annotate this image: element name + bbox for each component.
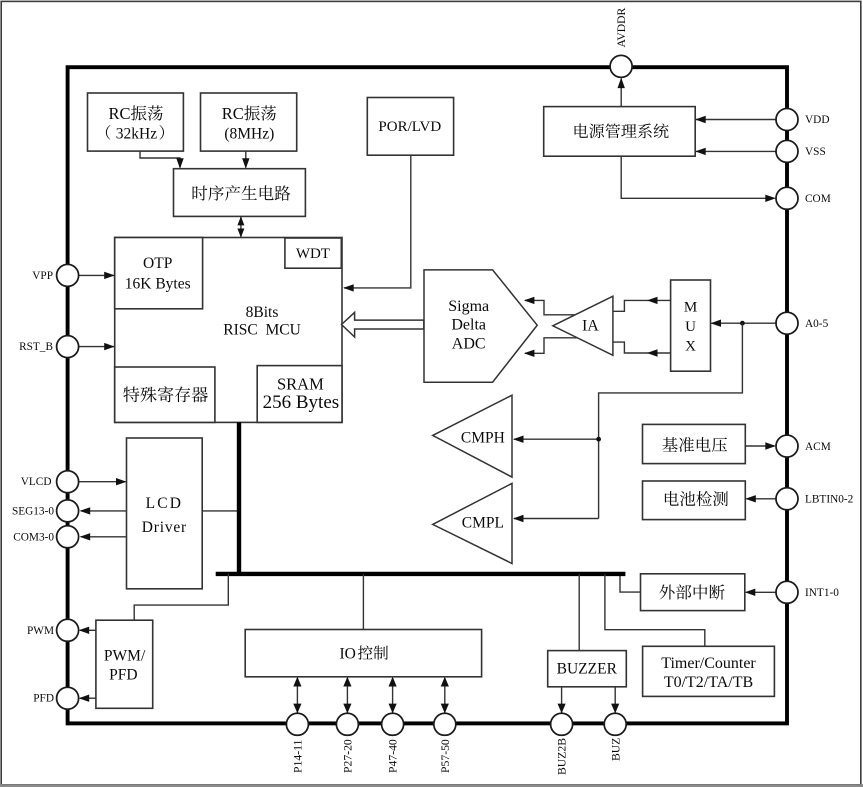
svg-text:VSS: VSS xyxy=(805,146,826,158)
svg-text:CMPL: CMPL xyxy=(462,514,504,531)
svg-text:COM3-0: COM3-0 xyxy=(13,531,54,543)
svg-text:VDD: VDD xyxy=(805,114,829,126)
svg-text:IA: IA xyxy=(582,318,599,335)
svg-text:(8MHz): (8MHz) xyxy=(224,125,274,142)
svg-text:PWM: PWM xyxy=(27,625,54,637)
svg-text:PFD: PFD xyxy=(33,693,54,705)
svg-text:P14-11: P14-11 xyxy=(292,740,305,773)
svg-text:P57-50: P57-50 xyxy=(439,739,452,773)
svg-text:IO: IO xyxy=(340,646,356,663)
svg-text:BUZZER: BUZZER xyxy=(557,661,618,678)
svg-text:16K Bytes: 16K Bytes xyxy=(125,276,191,293)
svg-text:CMPH: CMPH xyxy=(461,429,505,446)
svg-text:LCD: LCD xyxy=(146,495,184,512)
svg-text:RISC MCU: RISC MCU xyxy=(223,322,301,339)
svg-text:X: X xyxy=(685,338,696,354)
svg-text:SRAM: SRAM xyxy=(277,375,324,394)
svg-text:RC: RC xyxy=(222,104,244,123)
svg-text:BUZ2B: BUZ2B xyxy=(556,738,569,775)
svg-text:U: U xyxy=(685,319,696,335)
svg-text:POR/LVD: POR/LVD xyxy=(378,119,441,135)
svg-text:P27-20: P27-20 xyxy=(342,739,355,773)
svg-text:PFD: PFD xyxy=(109,667,137,684)
svg-text:VPP: VPP xyxy=(32,270,53,282)
svg-text:Sigma: Sigma xyxy=(448,298,489,315)
svg-text:256 Bytes: 256 Bytes xyxy=(263,392,340,413)
svg-text:WDT: WDT xyxy=(296,246,330,262)
svg-text:LBTIN0-2: LBTIN0-2 xyxy=(805,494,854,506)
svg-text:VLCD: VLCD xyxy=(21,476,52,488)
svg-text:RST_B: RST_B xyxy=(19,341,53,353)
svg-text:COM: COM xyxy=(805,193,831,205)
svg-text:INT1-0: INT1-0 xyxy=(805,587,839,599)
svg-text:M: M xyxy=(684,299,697,315)
svg-text:ACM: ACM xyxy=(805,441,831,453)
svg-text:Driver: Driver xyxy=(142,519,187,536)
svg-text:AVDDR: AVDDR xyxy=(615,8,628,48)
svg-text:32kHz: 32kHz xyxy=(116,125,157,142)
svg-text:SEG13-0: SEG13-0 xyxy=(12,505,54,517)
svg-text:OTP: OTP xyxy=(143,255,172,272)
svg-text:PWM/: PWM/ xyxy=(104,648,146,665)
svg-text:Delta: Delta xyxy=(451,316,486,333)
svg-text:BUZ: BUZ xyxy=(609,738,622,761)
svg-text:A0-5: A0-5 xyxy=(805,318,829,330)
svg-text:RC: RC xyxy=(109,104,131,123)
svg-text:T0/T2/TA/TB: T0/T2/TA/TB xyxy=(664,674,753,691)
svg-text:P47-40: P47-40 xyxy=(387,739,400,773)
svg-text:ADC: ADC xyxy=(452,335,486,352)
svg-text:8Bits: 8Bits xyxy=(246,304,279,321)
svg-text:Timer/Counter: Timer/Counter xyxy=(661,655,756,672)
